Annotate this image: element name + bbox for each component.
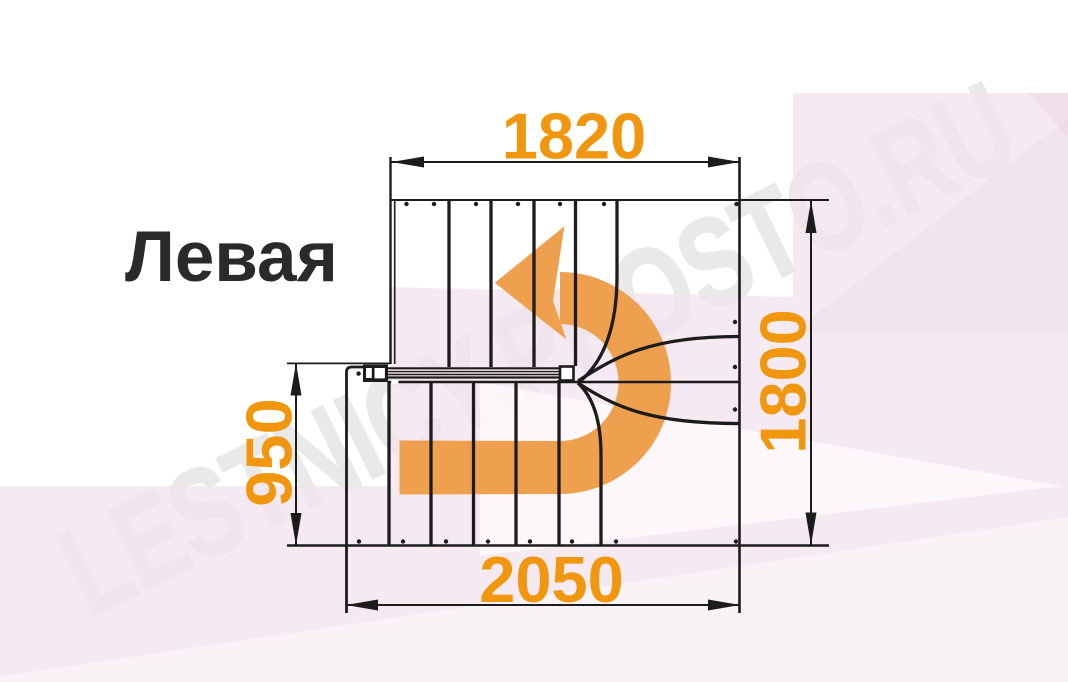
- svg-text:Левая: Левая: [125, 218, 338, 297]
- svg-text:950: 950: [233, 398, 306, 506]
- svg-text:1800: 1800: [747, 309, 820, 454]
- svg-text:1820: 1820: [502, 100, 647, 173]
- svg-text:2050: 2050: [479, 543, 624, 616]
